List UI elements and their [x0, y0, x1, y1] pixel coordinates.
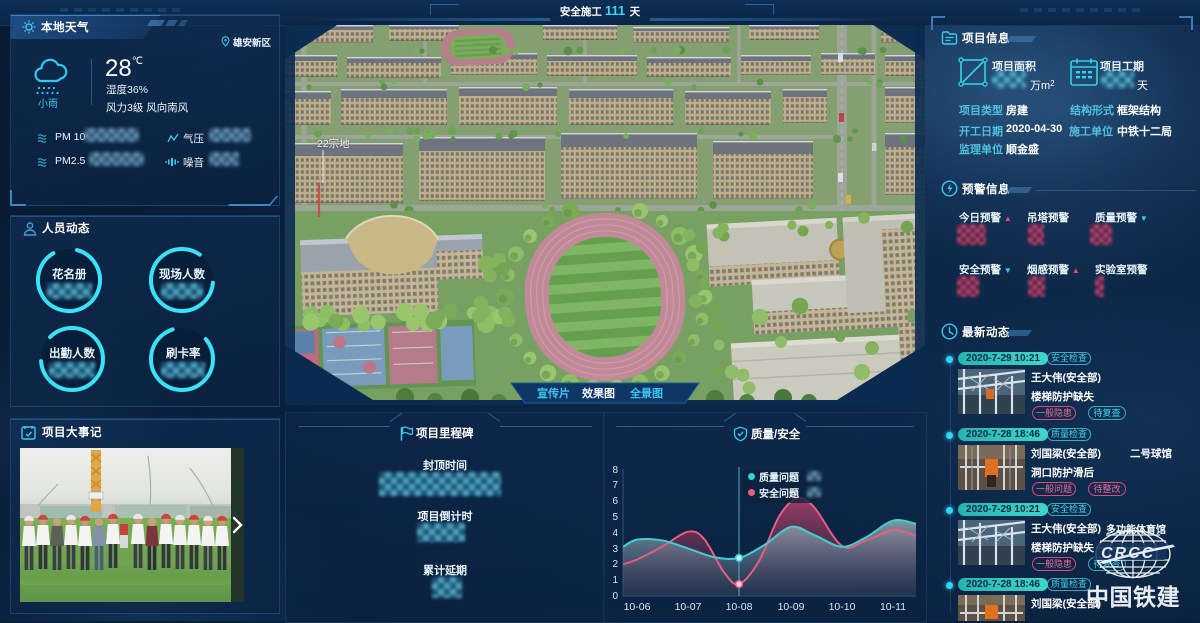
svg-text:效果图: 效果图 [582, 386, 615, 400]
svg-text:2: 2 [612, 559, 618, 570]
svg-text:5: 5 [612, 512, 618, 523]
svg-text:1: 1 [612, 575, 618, 586]
svg-text:3: 3 [612, 544, 618, 555]
svg-text:6: 6 [612, 496, 618, 507]
svg-text:全景图: 全景图 [629, 386, 663, 400]
svg-text:10-11: 10-11 [880, 601, 906, 613]
svg-text:宣传片: 宣传片 [537, 386, 570, 400]
svg-text:0: 0 [612, 591, 618, 602]
svg-text:22宗地: 22宗地 [317, 137, 350, 150]
svg-text:7: 7 [612, 480, 618, 491]
svg-text:10-08: 10-08 [726, 601, 753, 613]
svg-text:4: 4 [612, 528, 618, 539]
svg-text:10-07: 10-07 [675, 601, 702, 613]
svg-text:10-09: 10-09 [778, 601, 805, 613]
svg-text:10-10: 10-10 [829, 601, 856, 613]
svg-text:10-06: 10-06 [624, 601, 651, 613]
svg-text:8: 8 [612, 465, 618, 476]
